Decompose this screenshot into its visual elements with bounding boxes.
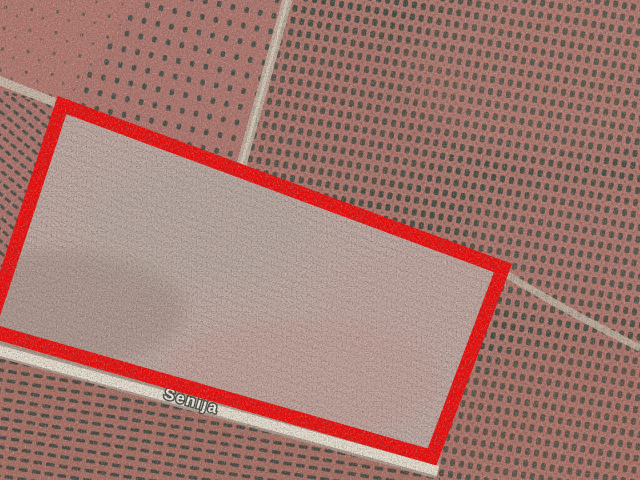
- map-viewport[interactable]: Senija: [0, 0, 640, 480]
- grain-overlay: [0, 0, 640, 480]
